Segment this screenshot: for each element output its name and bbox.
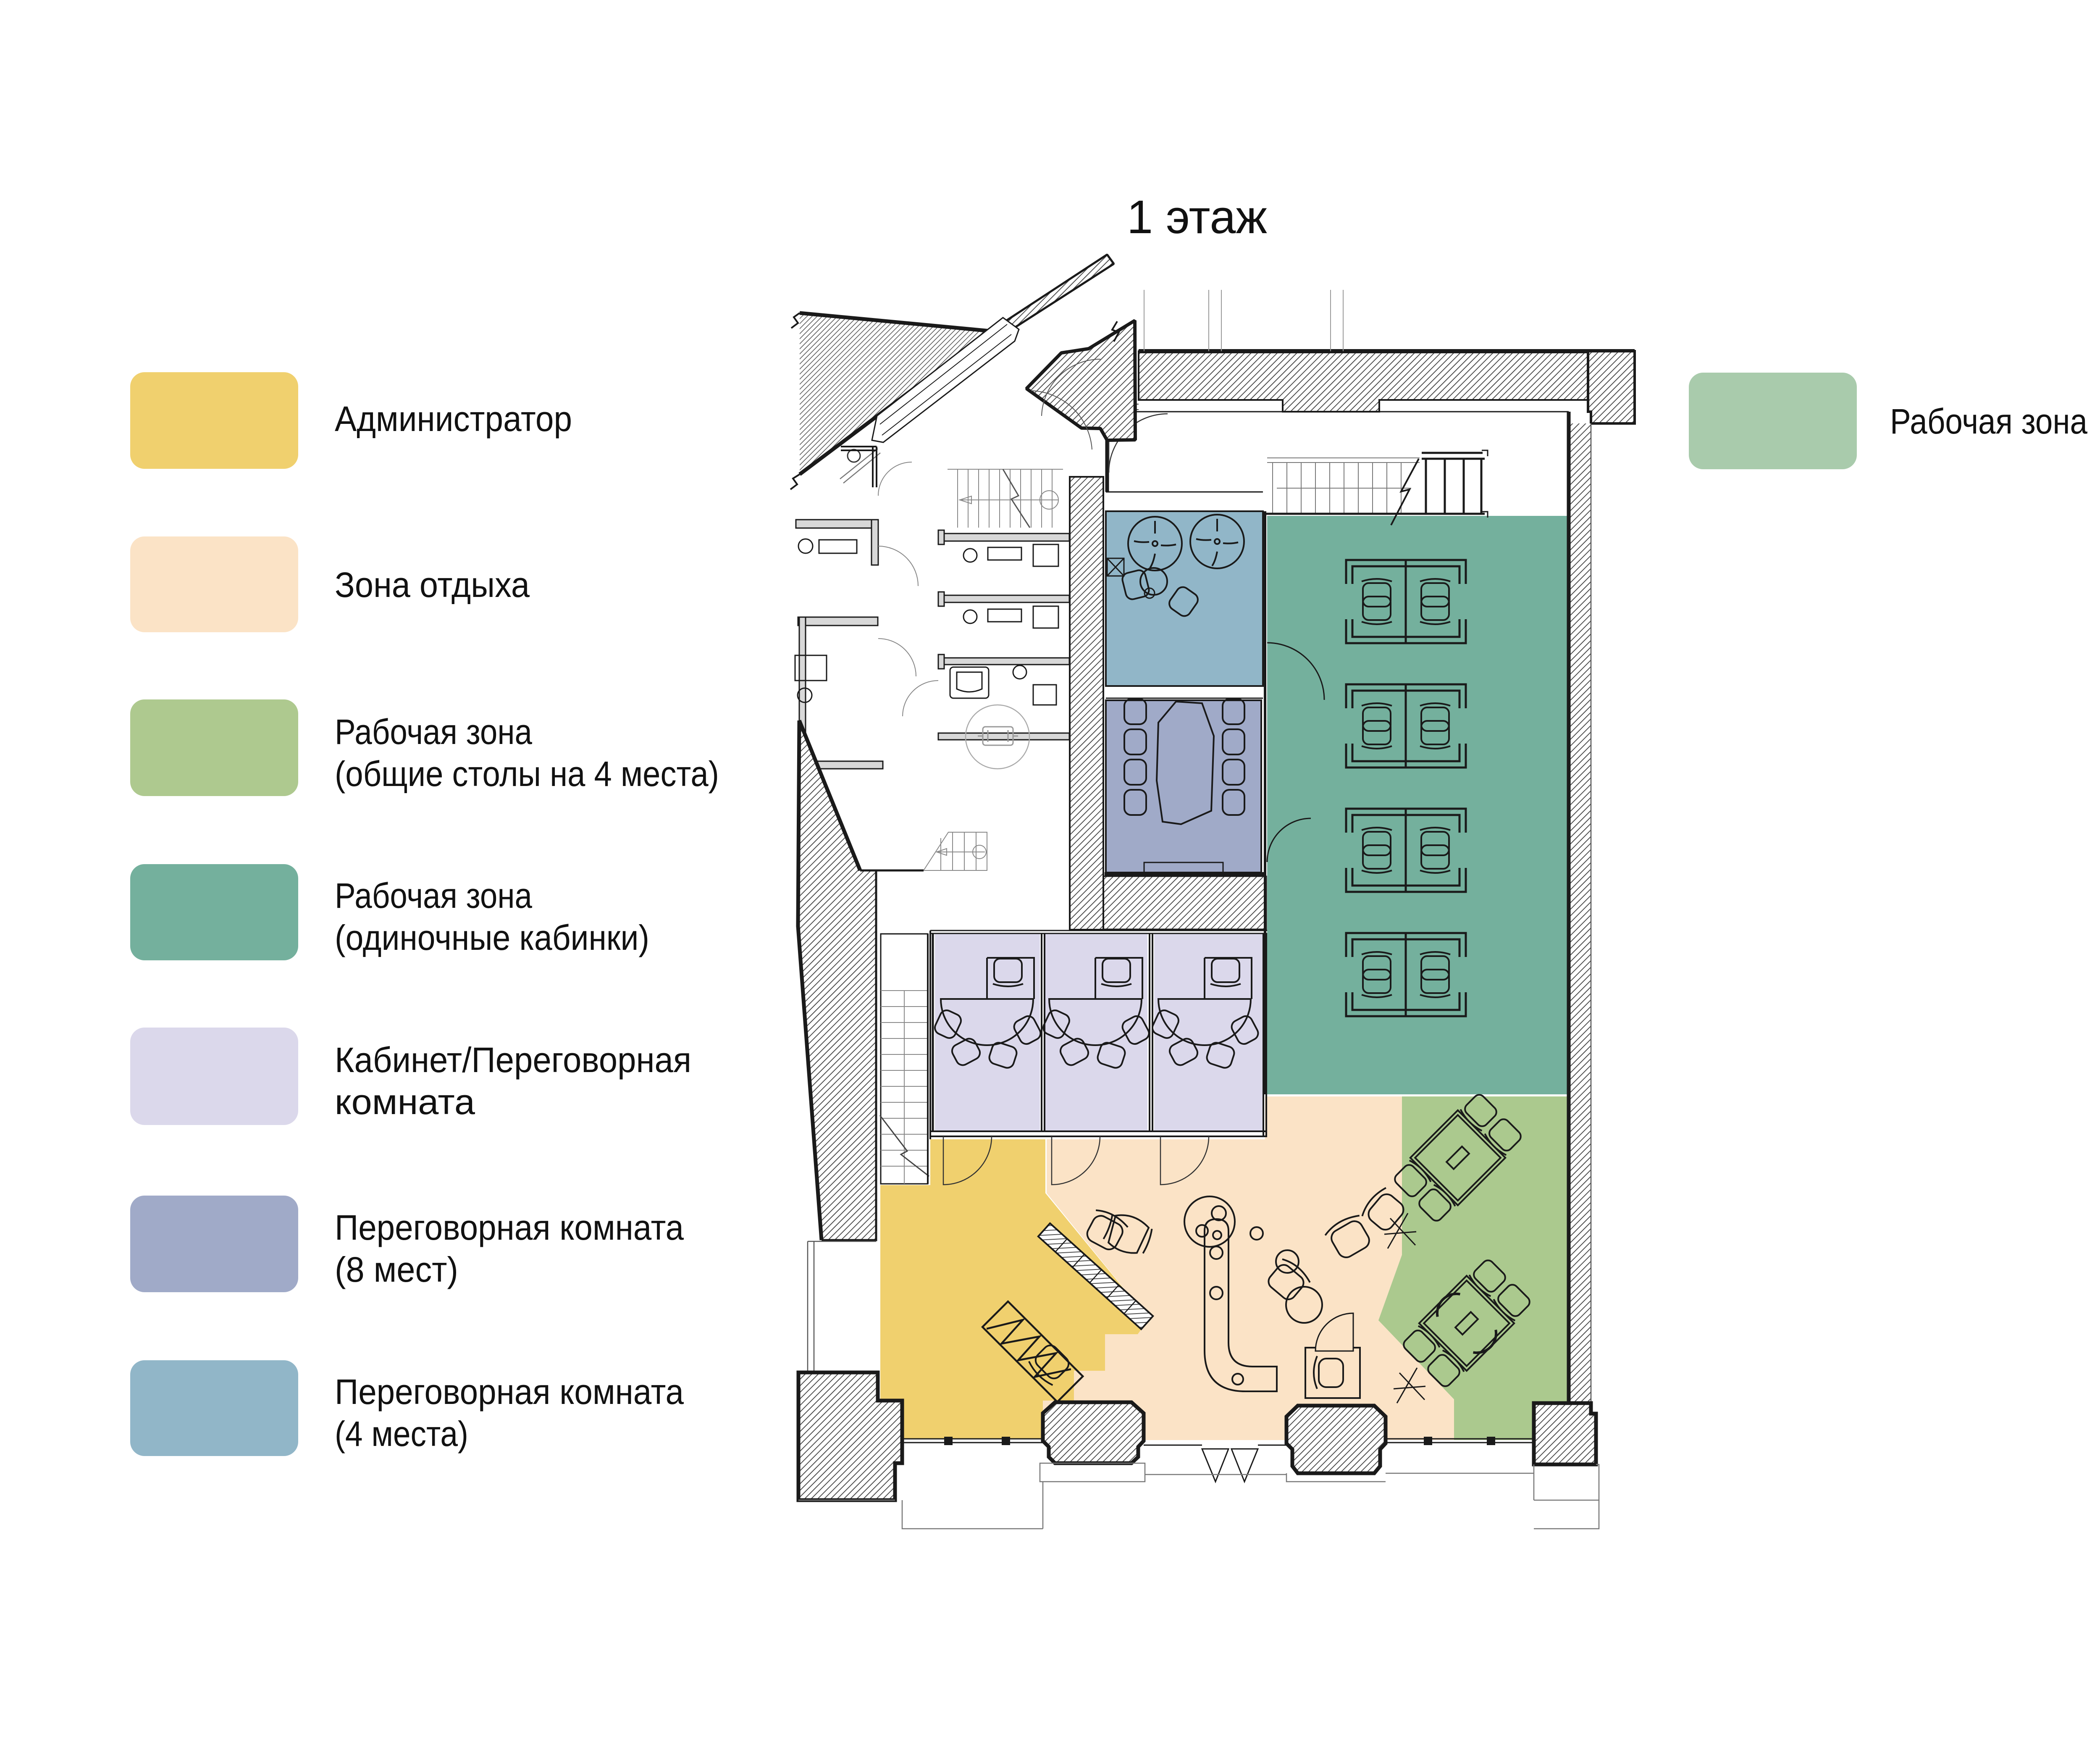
svg-text:комната: комната <box>335 1082 475 1122</box>
svg-text:Рабочая зона: Рабочая зона <box>1890 402 2087 441</box>
svg-text:Переговорная комната: Переговорная комната <box>335 1208 684 1247</box>
svg-text:Администратор: Администратор <box>335 399 572 439</box>
svg-text:Кабинет/Переговорная: Кабинет/Переговорная <box>335 1040 691 1080</box>
svg-text:Зона отдыха: Зона отдыха <box>335 565 530 605</box>
svg-text:(общие столы на 4 места): (общие столы на 4 места) <box>335 754 719 794</box>
svg-text:(4 места): (4 места) <box>335 1414 468 1454</box>
svg-text:Переговорная комната: Переговорная комната <box>335 1372 684 1412</box>
svg-text:Рабочая зона: Рабочая зона <box>335 876 532 915</box>
svg-text:1 этаж: 1 этаж <box>1127 191 1267 243</box>
svg-text:(одиночные кабинки): (одиночные кабинки) <box>335 918 649 957</box>
svg-text:Рабочая зона: Рабочая зона <box>335 712 532 752</box>
svg-text:(8 мест): (8 мест) <box>335 1250 458 1289</box>
